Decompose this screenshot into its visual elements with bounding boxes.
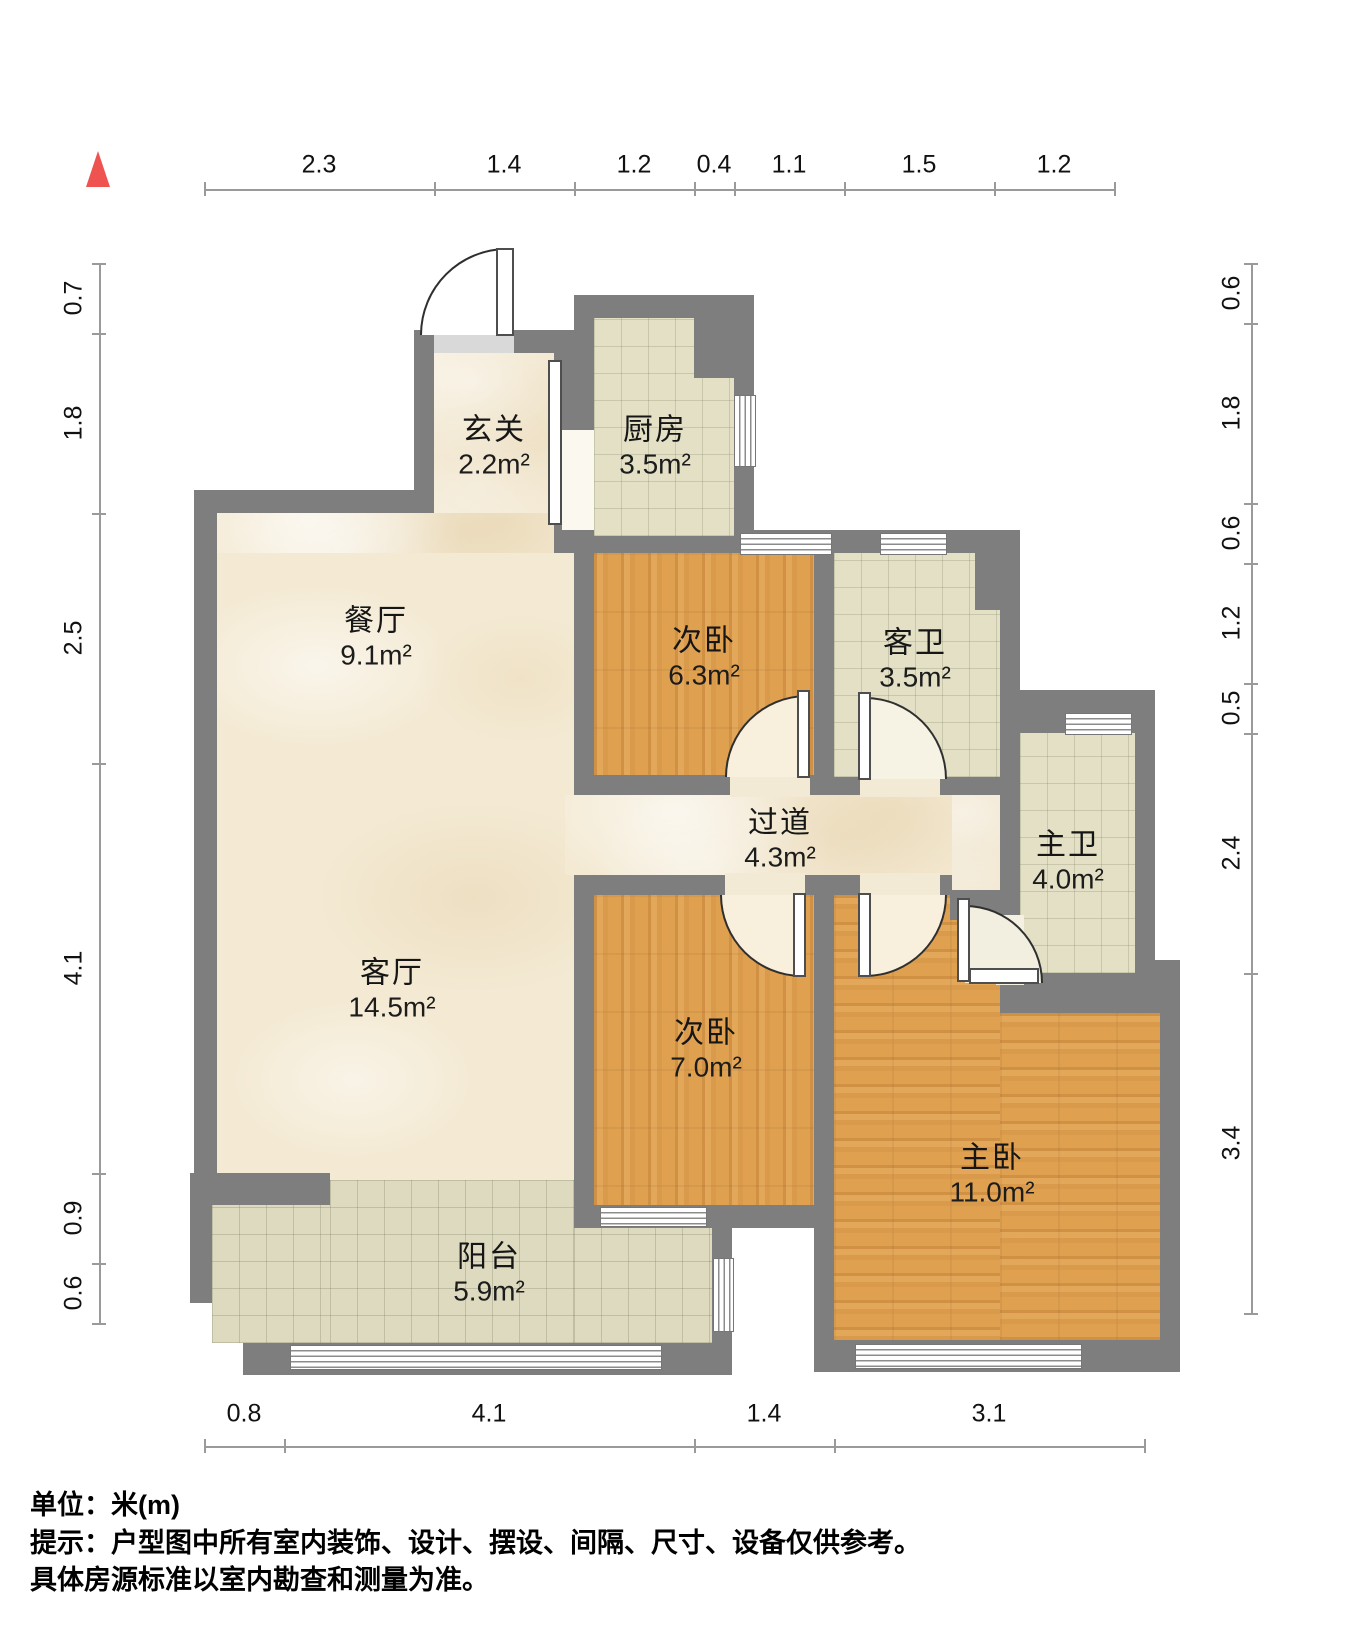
- dim-line-bottom: [204, 1446, 1144, 1448]
- dim-tick: [92, 1263, 106, 1265]
- dim-tick: [994, 182, 996, 196]
- dim-line-right: [1251, 263, 1253, 1313]
- window-balcony-side-icon: [713, 1258, 734, 1332]
- bedroom2-door-leaf: [797, 690, 810, 778]
- window-master-bedroom-icon: [855, 1344, 1082, 1369]
- dim-tick: [92, 263, 106, 265]
- room-area: 7.0m²: [670, 1051, 742, 1084]
- dim-top-5: 1.1: [772, 151, 807, 180]
- window-north-a-icon: [740, 533, 832, 555]
- floor-hallway-ext: [952, 795, 1000, 890]
- room-label-master-bath: 主卫 4.0m²: [1032, 829, 1104, 896]
- dim-tick: [204, 182, 206, 196]
- dim-tick: [574, 182, 576, 196]
- dim-top-1: 2.3: [302, 151, 337, 180]
- room-area: 9.1m²: [340, 639, 412, 672]
- room-name: 主卧: [949, 1142, 1034, 1176]
- entry-door-arc-icon: [420, 248, 507, 335]
- dim-tick: [1244, 503, 1258, 505]
- floor-balcony-1: [330, 1180, 574, 1343]
- window-master-bath-icon: [1065, 713, 1132, 735]
- dim-left-4: 4.1: [60, 951, 89, 986]
- room-area: 3.5m²: [619, 448, 691, 481]
- room-name: 过道: [744, 807, 816, 841]
- room-label-guest-bath: 客卫 3.5m²: [879, 627, 951, 694]
- dim-bottom-1: 0.8: [227, 1400, 262, 1429]
- window-north-b-icon: [880, 533, 947, 555]
- dim-left-2: 1.8: [60, 406, 89, 441]
- dim-right-7: 3.4: [1218, 1126, 1247, 1161]
- dim-bottom-3: 1.4: [747, 1400, 782, 1429]
- dim-top-2: 1.4: [487, 151, 522, 180]
- master-door-leaf: [858, 893, 871, 977]
- dim-top-7: 1.2: [1037, 151, 1072, 180]
- room-area: 3.5m²: [879, 661, 951, 694]
- kitchen-sliding-door: [548, 360, 562, 525]
- room-area: 14.5m²: [348, 991, 435, 1024]
- entry-door-leaf: [496, 248, 514, 336]
- dim-tick: [1144, 1439, 1146, 1453]
- dim-tick: [694, 1439, 696, 1453]
- master-bath-door-leaf: [957, 898, 970, 982]
- master-bath-threshold: [969, 968, 1039, 984]
- dim-bottom-4: 3.1: [972, 1400, 1007, 1429]
- room-area: 5.9m²: [453, 1275, 525, 1308]
- dim-right-4: 1.2: [1218, 606, 1247, 641]
- dim-tick: [844, 182, 846, 196]
- dim-tick: [1244, 263, 1258, 265]
- dim-tick: [1244, 683, 1258, 685]
- room-area: 6.3m²: [668, 659, 740, 692]
- room-label-kitchen: 厨房 3.5m²: [619, 414, 691, 481]
- room-label-dining: 餐厅 9.1m²: [340, 605, 412, 672]
- room-name: 客卫: [879, 627, 951, 661]
- dim-right-6: 2.4: [1218, 836, 1247, 871]
- room-name: 客厅: [348, 957, 435, 991]
- room-area: 2.2m²: [458, 448, 530, 481]
- dim-tick: [1244, 733, 1258, 735]
- room-name: 主卫: [1032, 829, 1104, 863]
- dim-line-top: [204, 189, 1114, 191]
- footer-unit-line: 单位：米(m): [30, 1483, 180, 1522]
- wall-living-balcony-step: [217, 1173, 330, 1205]
- window-kitchen-icon: [734, 395, 756, 467]
- dim-tick: [1244, 973, 1258, 975]
- room-area: 4.0m²: [1032, 863, 1104, 896]
- dim-top-4: 0.4: [697, 151, 732, 180]
- dim-line-left: [99, 263, 101, 1323]
- window-bedroom3-balcony-icon: [600, 1207, 707, 1227]
- dim-tick: [92, 1173, 106, 1175]
- dim-tick: [92, 333, 106, 335]
- dim-tick: [284, 1439, 286, 1453]
- dim-tick: [204, 1439, 206, 1453]
- room-name: 玄关: [458, 414, 530, 448]
- dim-top-6: 1.5: [902, 151, 937, 180]
- wall-guest-bath-notch: [975, 553, 1000, 610]
- floor-balcony-3: [574, 1228, 712, 1343]
- bedroom3-door-leaf: [793, 893, 806, 977]
- room-name: 次卧: [668, 625, 740, 659]
- dim-tick: [694, 182, 696, 196]
- doorway-master-bedroom: [860, 873, 940, 897]
- footer-notice-line2: 具体房源标准以室内勘查和测量为准。: [30, 1558, 489, 1597]
- entry-threshold: [434, 333, 514, 353]
- room-name: 阳台: [453, 1241, 525, 1275]
- room-area: 11.0m²: [949, 1176, 1034, 1209]
- dim-tick: [734, 182, 736, 196]
- room-label-entry: 玄关 2.2m²: [458, 414, 530, 481]
- dim-right-3: 0.6: [1218, 516, 1247, 551]
- dim-left-5: 0.9: [60, 1201, 89, 1236]
- room-label-bedroom3: 次卧 7.0m²: [670, 1017, 742, 1084]
- dim-tick: [434, 182, 436, 196]
- doorway-kitchen: [562, 430, 594, 530]
- dim-tick: [1244, 1313, 1258, 1315]
- room-label-living: 客厅 14.5m²: [348, 957, 435, 1024]
- dim-top-3: 1.2: [617, 151, 652, 180]
- guest-bath-door-leaf: [858, 692, 871, 780]
- dim-tick: [1244, 323, 1258, 325]
- room-label-hallway: 过道 4.3m²: [744, 807, 816, 874]
- dim-bottom-2: 4.1: [472, 1400, 507, 1429]
- footer-notice-line1: 提示：户型图中所有室内装饰、设计、摆设、间隔、尺寸、设备仅供参考。: [30, 1521, 921, 1560]
- dim-right-1: 0.6: [1218, 276, 1247, 311]
- window-balcony-icon: [290, 1345, 662, 1370]
- dim-tick: [1114, 182, 1116, 196]
- room-label-balcony: 阳台 5.9m²: [453, 1241, 525, 1308]
- room-area: 4.3m²: [744, 841, 816, 874]
- dim-tick: [92, 763, 106, 765]
- dim-right-5: 0.5: [1218, 691, 1247, 726]
- room-name: 餐厅: [340, 605, 412, 639]
- dim-right-2: 1.8: [1218, 396, 1247, 431]
- dim-tick: [92, 513, 106, 515]
- floor-plan: 2.3 1.4 1.2 0.4 1.1 1.5 1.2 0.7 1.8 2.5 …: [0, 0, 1352, 1642]
- room-label-bedroom2: 次卧 6.3m²: [668, 625, 740, 692]
- room-name: 厨房: [619, 414, 691, 448]
- wall-kitchen-notch: [694, 295, 754, 378]
- dim-tick: [92, 1323, 106, 1325]
- dim-left-3: 2.5: [60, 621, 89, 656]
- room-label-master-bedroom: 主卧 11.0m²: [949, 1142, 1034, 1209]
- dim-tick: [834, 1439, 836, 1453]
- dim-tick: [1244, 563, 1258, 565]
- dim-left-1: 0.7: [60, 281, 89, 316]
- floor-dining-strip: [217, 513, 554, 553]
- dim-left-6: 0.6: [60, 1276, 89, 1311]
- room-name: 次卧: [670, 1017, 742, 1051]
- floor-balcony-2: [212, 1205, 330, 1343]
- north-arrow-icon: [86, 151, 110, 187]
